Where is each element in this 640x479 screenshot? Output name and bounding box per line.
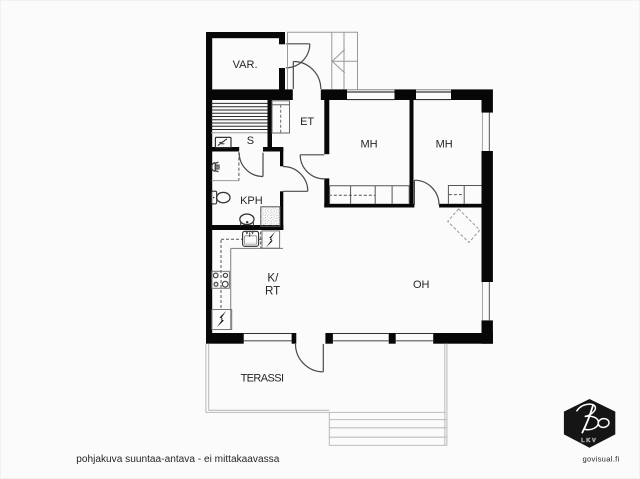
svg-text:MH: MH: [436, 139, 453, 151]
svg-text:TERASSI: TERASSI: [241, 373, 284, 385]
svg-text:VAR.: VAR.: [233, 59, 258, 71]
svg-text:MH: MH: [360, 139, 377, 151]
svg-text:KPH: KPH: [240, 195, 263, 207]
svg-text:govisual.fi: govisual.fi: [582, 455, 619, 464]
svg-text:pohjakuva suuntaa-antava - ei: pohjakuva suuntaa-antava - ei mittakaava…: [76, 454, 280, 465]
svg-text:ET: ET: [300, 116, 314, 128]
svg-text:K/: K/: [267, 272, 279, 285]
svg-text:LKV: LKV: [581, 438, 597, 444]
svg-text:S: S: [247, 135, 254, 147]
svg-text:RT: RT: [265, 284, 280, 297]
svg-text:OH: OH: [413, 279, 430, 291]
